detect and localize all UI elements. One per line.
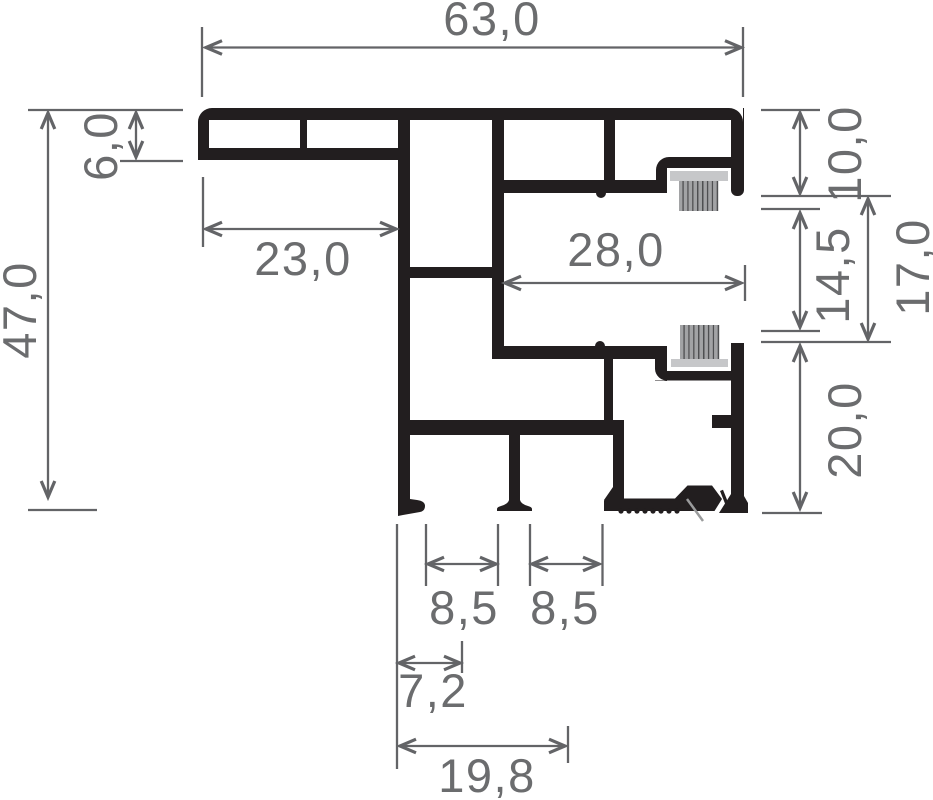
svg-text:17,0: 17,0 bbox=[886, 218, 933, 315]
svg-text:14,5: 14,5 bbox=[806, 226, 859, 323]
svg-text:7,2: 7,2 bbox=[398, 664, 468, 717]
svg-text:47,0: 47,0 bbox=[0, 261, 46, 358]
svg-text:20,0: 20,0 bbox=[818, 381, 871, 478]
svg-text:10,0: 10,0 bbox=[818, 105, 871, 202]
svg-text:8,5: 8,5 bbox=[530, 581, 600, 634]
svg-text:23,0: 23,0 bbox=[254, 232, 351, 285]
svg-text:63,0: 63,0 bbox=[443, 0, 540, 45]
svg-text:6,0: 6,0 bbox=[74, 111, 127, 181]
svg-text:8,5: 8,5 bbox=[429, 581, 499, 634]
svg-text:19,8: 19,8 bbox=[438, 749, 535, 800]
svg-text:28,0: 28,0 bbox=[567, 223, 664, 276]
